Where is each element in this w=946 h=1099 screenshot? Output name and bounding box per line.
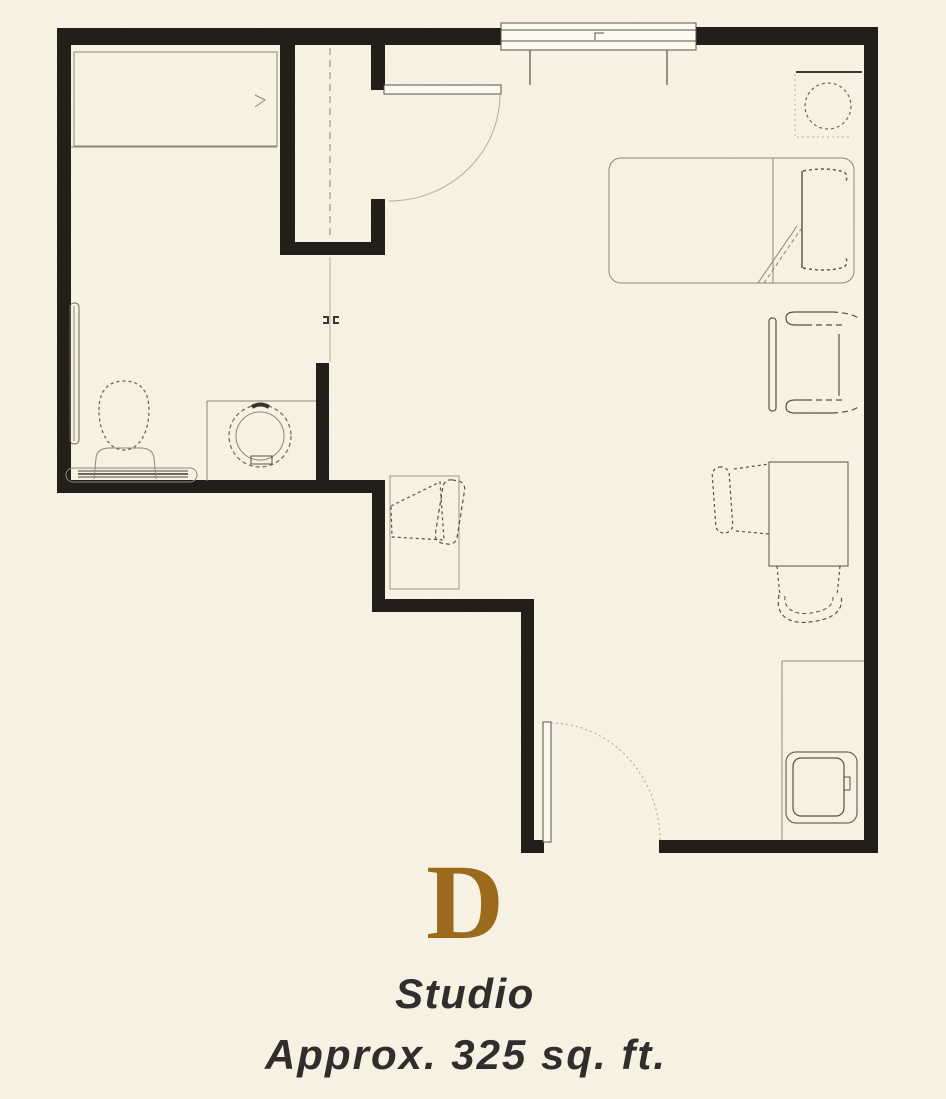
svg-text:D: D — [426, 843, 504, 962]
svg-text:Approx. 325 sq. ft.: Approx. 325 sq. ft. — [264, 1031, 667, 1078]
svg-text:Studio: Studio — [395, 970, 535, 1017]
